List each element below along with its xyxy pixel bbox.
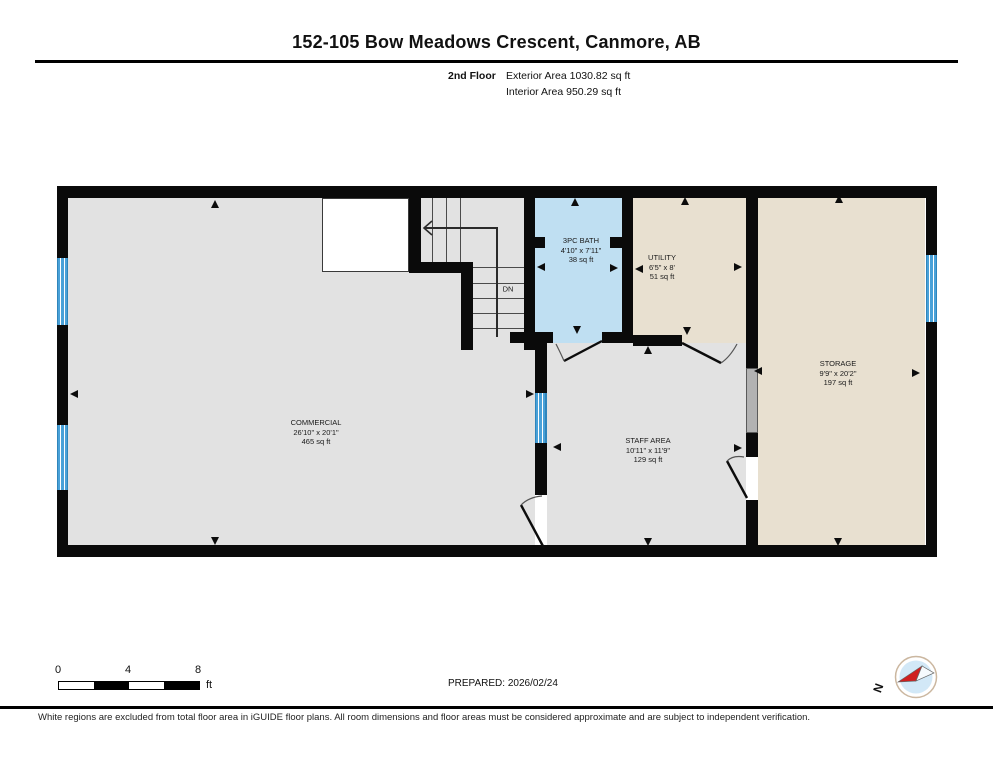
room-area: 38 sq ft (561, 255, 602, 265)
dimension-arrow-left-icon (553, 443, 561, 451)
wall-bath-bottom-left (510, 332, 553, 343)
wall-storage-mid (746, 433, 758, 457)
window-icon (57, 258, 68, 325)
room-label-commercial: COMMERCIAL 26'10" x 20'1" 465 sq ft (291, 418, 342, 447)
scale-tick-0: 0 (55, 664, 61, 676)
scale-tick-4: 4 (125, 664, 131, 676)
scale-unit-label: ft (206, 679, 212, 691)
wall-utility-bottom (633, 335, 682, 346)
disclaimer-text: White regions are excluded from total fl… (38, 712, 810, 723)
window-icon (57, 425, 68, 490)
room-name: STAFF AREA (625, 436, 670, 446)
floorplan-page: 152-105 Bow Meadows Crescent, Canmore, A… (0, 0, 993, 768)
room-label-bath: 3PC BATH 4'10" x 7'11" 38 sq ft (561, 236, 602, 265)
room-label-utility: UTILITY 6'5" x 8' 51 sq ft (648, 253, 676, 282)
dimension-arrow-down-icon (644, 538, 652, 546)
prepared-date-label: PREPARED: 2026/02/24 (448, 678, 558, 689)
room-name: 3PC BATH (561, 236, 602, 246)
wall-right (926, 186, 937, 557)
room-dims: 4'10" x 7'11" (561, 245, 602, 255)
wall-storage-lower (746, 500, 758, 546)
sliding-door-icon (746, 368, 758, 433)
dimension-arrow-up-icon (571, 198, 579, 206)
compass-icon (896, 657, 937, 698)
wall-storage-upper (746, 198, 758, 368)
dimension-arrow-down-icon (211, 537, 219, 545)
stair-direction-line (496, 227, 498, 337)
window-icon (926, 255, 937, 322)
dimension-arrow-down-icon (834, 538, 842, 546)
dimension-arrow-up-icon (681, 197, 689, 205)
page-title: 152-105 Bow Meadows Crescent, Canmore, A… (0, 32, 993, 53)
stairs-down-label: DN (503, 285, 514, 294)
room-area: 51 sq ft (648, 272, 676, 282)
stair-tread (460, 198, 461, 262)
room-label-staff-area: STAFF AREA 10'11" x 11'9" 129 sq ft (625, 436, 670, 465)
dimension-arrow-left-icon (70, 390, 78, 398)
wall-stub-bath-right (610, 237, 622, 248)
scale-bar (58, 681, 200, 690)
room-area: 465 sq ft (291, 437, 342, 447)
scale-bar-segment (94, 682, 129, 689)
stair-tread (473, 298, 524, 299)
header-divider (35, 60, 958, 63)
stair-tread (473, 328, 524, 329)
footer-divider (0, 706, 993, 709)
wall-staff-lower (535, 443, 547, 495)
wall-bottom (57, 545, 937, 557)
compass-north-label: N (870, 682, 886, 695)
scale-bar-segment (164, 682, 199, 689)
room-dims: 26'10" x 20'1" (291, 427, 342, 437)
stair-tread (473, 313, 524, 314)
excluded-white-region (322, 198, 409, 272)
room-commercial (68, 198, 535, 546)
dimension-arrow-right-icon (734, 444, 742, 452)
wall-bath-bottom-right (602, 332, 633, 343)
room-name: COMMERCIAL (291, 418, 342, 428)
dimension-arrow-left-icon (754, 367, 762, 375)
room-dims: 9'9" x 20'2" (820, 368, 857, 378)
wall-staff-upper (535, 343, 547, 393)
wall-stub-bath-left (530, 237, 545, 248)
stair-tread (473, 267, 524, 268)
room-dims: 6'5" x 8' (648, 262, 676, 272)
wall-stairs-mid (409, 262, 463, 273)
stair-direction-line (424, 227, 498, 229)
dimension-arrow-right-icon (734, 263, 742, 271)
dimension-arrow-right-icon (526, 390, 534, 398)
dimension-arrow-up-icon (211, 200, 219, 208)
dimension-arrow-down-icon (573, 326, 581, 334)
interior-area-label: Interior Area 950.29 sq ft (506, 86, 621, 98)
room-area: 197 sq ft (820, 378, 857, 388)
room-dims: 10'11" x 11'9" (625, 445, 670, 455)
wall-bath-right (622, 198, 633, 343)
wall-bath-left (524, 198, 535, 350)
wall-left (57, 186, 68, 557)
stair-tread (473, 283, 524, 284)
dimension-arrow-left-icon (537, 263, 545, 271)
stair-tread (432, 198, 433, 262)
scale-bar-segment (129, 682, 164, 689)
stair-tread (446, 198, 447, 262)
window-icon (535, 393, 547, 443)
room-name: UTILITY (648, 253, 676, 263)
scale-bar-segment (59, 682, 94, 689)
room-label-storage: STORAGE 9'9" x 20'2" 197 sq ft (820, 359, 857, 388)
exterior-area-label: Exterior Area 1030.82 sq ft (506, 70, 630, 82)
dimension-arrow-up-icon (644, 346, 652, 354)
dimension-arrow-up-icon (835, 195, 843, 203)
dimension-arrow-right-icon (912, 369, 920, 377)
dimension-arrow-left-icon (635, 265, 643, 273)
wall-stairs-vertical (461, 262, 473, 350)
dimension-arrow-down-icon (683, 327, 691, 335)
room-bath (535, 198, 622, 343)
scale-tick-8: 8 (195, 664, 201, 676)
wall-top (57, 186, 937, 198)
room-name: STORAGE (820, 359, 857, 369)
room-area: 129 sq ft (625, 455, 670, 465)
floor-label: 2nd Floor (448, 70, 496, 82)
dimension-arrow-right-icon (610, 264, 618, 272)
